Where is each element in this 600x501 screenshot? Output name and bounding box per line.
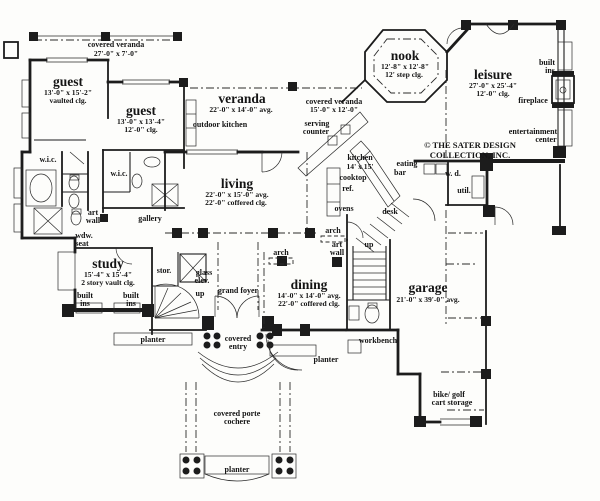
bath-block xyxy=(14,152,108,252)
art-niche xyxy=(100,214,108,222)
column xyxy=(461,20,471,30)
built-ins-leisure-label2: ins. xyxy=(545,66,557,75)
guest2-bath xyxy=(103,152,184,208)
guest1-title: guest xyxy=(53,74,84,89)
entry-door-swing xyxy=(237,296,259,318)
glass-elev-label2: elev. xyxy=(195,276,210,285)
door-swing xyxy=(347,222,363,238)
covered-veranda-side-dim: 15'-0" x 12'-0" xyxy=(310,105,358,114)
arch-dining-label: arch xyxy=(325,226,341,235)
copyright-line1: © THE SATER DESIGN xyxy=(424,140,517,150)
floor-plan-sheet: covered veranda 27'-0" x 7'-0" guest 13'… xyxy=(0,0,600,501)
porte-cochere-label2: cochere xyxy=(224,417,251,426)
column xyxy=(288,82,297,91)
wic2-label: w.i.c. xyxy=(110,169,127,178)
outdoor-fireplace-inner xyxy=(7,45,15,55)
toilet xyxy=(69,176,79,190)
door-swing xyxy=(262,152,282,172)
equipment xyxy=(472,176,484,198)
window-seat xyxy=(58,252,75,290)
door-post xyxy=(300,324,310,336)
planter-entry-label: planter xyxy=(141,335,166,344)
grand-foyer-label: grand foyer xyxy=(218,286,259,295)
covered-veranda-top-label: covered veranda xyxy=(88,40,145,49)
wall-chunk xyxy=(481,369,491,379)
door-post xyxy=(272,324,282,336)
fireplace-label: fireplace xyxy=(518,96,548,105)
column xyxy=(268,228,278,238)
column xyxy=(277,256,287,266)
toilet xyxy=(132,174,142,188)
wall-chunk xyxy=(552,226,566,235)
column xyxy=(29,32,38,41)
built-ins-study-l2: ins xyxy=(80,299,90,308)
garage-dim: 21'-0" x 39'-0" avg. xyxy=(396,295,459,304)
door-post xyxy=(202,316,214,330)
entry-steps xyxy=(202,364,274,382)
guest2-clg: 12'-0" clg. xyxy=(124,125,157,134)
up-stair-label: up xyxy=(365,240,374,249)
living-title: living xyxy=(221,176,254,191)
sink xyxy=(144,157,160,167)
cooktop-label: cooktop xyxy=(339,173,367,182)
eating-bar-label: eating xyxy=(397,159,418,168)
covered-veranda-top-dim: 27'-0" x 7'-0" xyxy=(94,49,138,58)
guest2-title: guest xyxy=(126,103,157,118)
wall-chunk xyxy=(553,146,566,158)
washer-dryer-label: w. d. xyxy=(445,169,461,178)
eating-bar-label2: bar xyxy=(394,168,406,177)
study-title: study xyxy=(92,256,124,271)
copyright-line2: COLLECTION, INC. xyxy=(430,150,510,160)
stor-label: stor. xyxy=(157,266,172,275)
bathtub xyxy=(26,170,56,206)
planter-side-label: planter xyxy=(314,355,339,364)
workbench-label: workbench xyxy=(359,336,398,345)
leisure-title: leisure xyxy=(474,67,512,82)
toilet xyxy=(71,211,81,225)
column xyxy=(173,32,182,41)
bathtub-basin xyxy=(30,174,52,202)
veranda-center xyxy=(186,82,362,146)
arch-living-label: arch xyxy=(273,248,289,257)
gallery-label: gallery xyxy=(138,214,162,223)
veranda-dim: 22'-0" x 14'-0" avg. xyxy=(209,105,272,114)
side-steps xyxy=(266,334,302,370)
labels: covered veranda 27'-0" x 7'-0" guest 13'… xyxy=(39,40,557,474)
entertainment-cabinet xyxy=(558,110,572,146)
washer xyxy=(424,164,435,174)
garage-title: garage xyxy=(409,280,448,295)
ref-label: ref. xyxy=(342,184,354,193)
up-spiral-label: up xyxy=(196,289,205,298)
study-clg: 2 story vault clg. xyxy=(81,278,135,287)
kitchen-dim: 14' x 15' xyxy=(346,162,373,171)
entertainment-label2: center xyxy=(535,135,557,144)
ovens-label: ovens xyxy=(334,204,353,213)
wall-chunk xyxy=(481,316,491,326)
art-wall-left-label2: wall xyxy=(86,216,101,225)
bike-golf-label2: cart storage xyxy=(432,398,473,407)
built-ins-study-r2: ins xyxy=(126,299,136,308)
art-wall-column xyxy=(332,257,342,267)
door-swing xyxy=(413,199,435,221)
art-wall-right-label2: wall xyxy=(330,248,345,257)
kitchen-title: kitchen xyxy=(347,153,373,162)
serving-counter-label2: counter xyxy=(303,127,330,136)
column xyxy=(172,228,182,238)
main-stair xyxy=(347,240,398,330)
dining-clg: 22'-0" coffered clg. xyxy=(278,299,340,308)
wdw-seat-label2: seat xyxy=(75,239,89,248)
desk-label: desk xyxy=(382,207,398,216)
sink xyxy=(349,306,359,320)
planter-box xyxy=(270,345,316,356)
grand-foyer xyxy=(198,242,278,382)
spiral-stair-arc xyxy=(155,284,199,318)
nook-title: nook xyxy=(391,48,420,63)
fireplace-flue xyxy=(560,87,566,93)
covered-entry-label2: entry xyxy=(229,342,247,351)
door-swing xyxy=(495,207,513,225)
leisure-clg: 12'-0" clg. xyxy=(476,89,509,98)
wall-chunk xyxy=(483,205,495,217)
column xyxy=(305,228,315,238)
guest1-clg: vaulted clg. xyxy=(49,96,86,105)
wic1-label: w.i.c. xyxy=(39,155,56,164)
nook-clg: 12' step clg. xyxy=(385,70,423,79)
column xyxy=(198,228,208,238)
column xyxy=(556,20,566,30)
planter-curve xyxy=(205,474,269,481)
floor-plan-drawing: covered veranda 27'-0" x 7'-0" guest 13'… xyxy=(0,0,600,501)
util-label: util. xyxy=(457,186,471,195)
wall-chunk xyxy=(470,416,482,427)
toilet xyxy=(69,194,79,208)
wall-chunk xyxy=(552,103,574,108)
dining-title: dining xyxy=(291,277,328,292)
outdoor-kitchen-label: outdoor kitchen xyxy=(193,120,248,129)
living-clg: 22'-0" coffered clg. xyxy=(205,198,267,207)
planter-front-label: planter xyxy=(225,465,250,474)
veranda-title: veranda xyxy=(218,91,266,106)
wall-chunk xyxy=(62,304,74,317)
built-ins-cabinet xyxy=(558,42,572,70)
